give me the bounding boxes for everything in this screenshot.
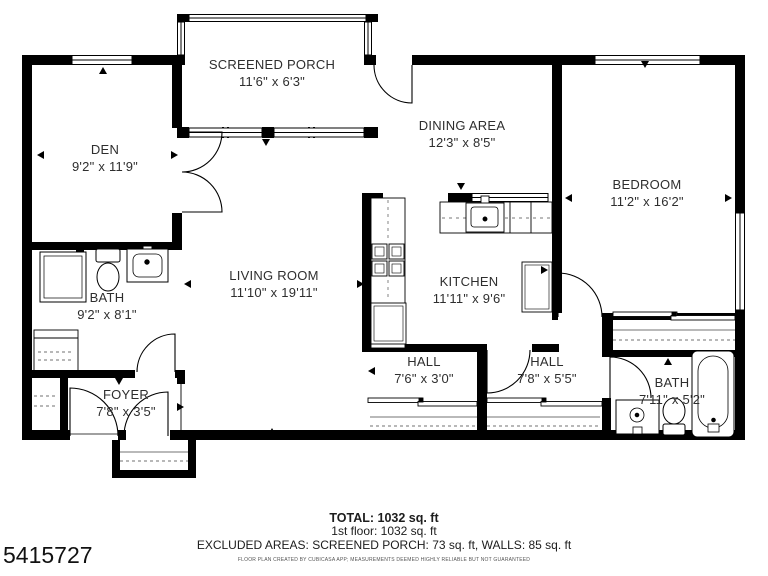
room-name: HALL <box>517 353 577 370</box>
window-bedroom-right <box>736 213 745 310</box>
room-dims: 7'11" x 5'2" <box>639 391 705 408</box>
room-label-hall-right: HALL 7'8" x 5'5" <box>517 353 577 387</box>
room-label-hall-left: HALL 7'6" x 3'0" <box>394 353 454 387</box>
room-label-bath-right: BATH 7'11" x 5'2" <box>639 374 705 408</box>
total-area-text: TOTAL: 1032 sq. ft <box>0 511 768 525</box>
plan-summary: TOTAL: 1032 sq. ft 1st floor: 1032 sq. f… <box>0 511 768 563</box>
room-dims: 11'10" x 19'11" <box>229 284 318 301</box>
room-dims: 9'2" x 8'1" <box>77 306 137 323</box>
floor-plan-page: SCREENED PORCH 11'6" x 6'3" DEN 9'2" x 1… <box>0 0 768 576</box>
hall-right-closet-slider <box>487 398 602 406</box>
room-dims: 7'8" x 5'5" <box>517 370 577 387</box>
door-bath-left <box>137 334 175 372</box>
room-name: KITCHEN <box>433 273 506 290</box>
room-label-foyer: FOYER 7'8" x 3'5" <box>96 386 156 420</box>
room-name: SCREENED PORCH <box>209 56 335 73</box>
toilet-symbol <box>96 249 120 291</box>
listing-id: 5415727 <box>3 542 93 569</box>
room-name: DEN <box>72 141 138 158</box>
room-label-den: DEN 9'2" x 11'9" <box>72 141 138 175</box>
room-name: LIVING ROOM <box>229 267 318 284</box>
door-bedroom <box>558 273 602 317</box>
first-floor-area-text: 1st floor: 1032 sq. ft <box>0 525 768 539</box>
refrigerator-symbol <box>522 262 552 312</box>
door-porch-to-dining <box>374 65 412 103</box>
excluded-areas-text: EXCLUDED AREAS: SCREENED PORCH: 73 sq. f… <box>0 539 768 553</box>
window-den-top <box>72 56 132 65</box>
room-label-dining-area: DINING AREA 12'3" x 8'5" <box>419 117 506 151</box>
room-name: BATH <box>77 289 137 306</box>
room-dims: 11'6" x 6'3" <box>209 73 335 90</box>
room-label-bath-left: BATH 9'2" x 8'1" <box>77 289 137 323</box>
room-name: FOYER <box>96 386 156 403</box>
room-label-bedroom: BEDROOM 11'2" x 16'2" <box>610 176 684 210</box>
dishwasher-symbol <box>371 303 406 344</box>
room-name: BEDROOM <box>610 176 684 193</box>
room-name: BATH <box>639 374 705 391</box>
room-label-living-room: LIVING ROOM 11'10" x 19'11" <box>229 267 318 301</box>
room-name: HALL <box>394 353 454 370</box>
disclaimer-text: FLOOR PLAN CREATED BY CUBICASA APP; MEAS… <box>0 557 768 563</box>
door-den-double-bottom <box>182 172 222 212</box>
room-dims: 12'3" x 8'5" <box>419 134 506 151</box>
room-dims: 7'8" x 3'5" <box>96 403 156 420</box>
hall-left-closet-slider <box>368 398 477 406</box>
room-dims: 11'11" x 9'6" <box>433 290 506 307</box>
room-dims: 11'2" x 16'2" <box>610 193 684 210</box>
room-label-kitchen: KITCHEN 11'11" x 9'6" <box>433 273 506 307</box>
room-name: DINING AREA <box>419 117 506 134</box>
room-dims: 9'2" x 11'9" <box>72 158 138 175</box>
room-label-screened-porch: SCREENED PORCH 11'6" x 6'3" <box>209 56 335 90</box>
room-dims: 7'6" x 3'0" <box>394 370 454 387</box>
sink-symbol <box>127 246 168 282</box>
bath-closet-slider <box>34 330 78 371</box>
